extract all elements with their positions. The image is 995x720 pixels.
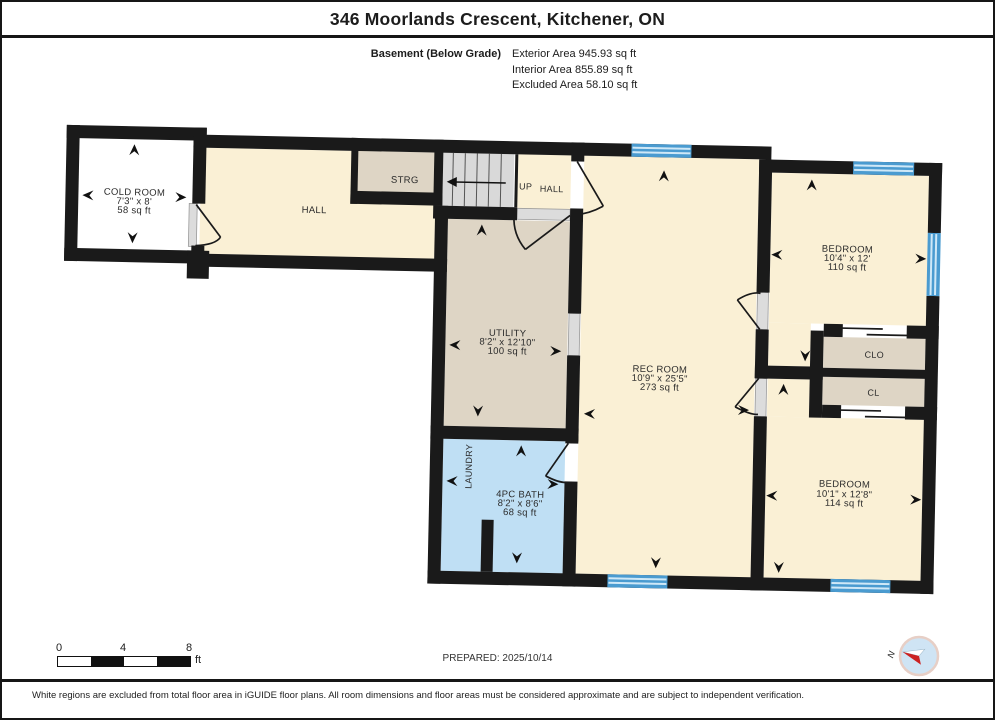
cl-sliding-door [839,410,881,411]
prepared-date: PREPARED: 2025/10/14 [2,653,993,664]
storage-floor [358,151,435,193]
bath-area: 68 sq ft [503,507,537,519]
closet-clo-name: CLO [864,350,884,360]
footer-divider [2,679,993,682]
hall-name: HALL [302,205,327,217]
utility-floor [444,219,570,429]
stairs-up-arrow [455,182,506,183]
stairs-up-label: UP [519,181,532,191]
bedroom-top-area: 110 sq ft [828,262,867,274]
compass-north-label: N [885,649,897,659]
bedroom-top-nook [768,323,811,367]
floorplan-drawing: COLD ROOM 7'3" x 8' 58 sq ft HALL STRG U… [2,2,995,720]
clo-sliding-door [841,328,883,329]
bedroom-bottom-area: 114 sq ft [825,498,864,510]
hall-floor-lower [349,204,435,259]
bedroom-bottom-nook [767,379,810,418]
stair-hall-name: HALL [540,184,564,194]
utility-area: 100 sq ft [488,346,527,358]
laundry-name: LAUNDRY [463,444,474,489]
storage-name: STRG [391,175,419,187]
disclaimer-text: White regions are excluded from total fl… [32,690,804,701]
cold-room-area: 58 sq ft [117,205,151,217]
closet-cl-name: CL [867,388,879,398]
floorplan-page: 346 Moorlands Crescent, Kitchener, ON Ba… [0,0,995,720]
rec-room-area: 273 sq ft [640,382,679,394]
compass-icon: N [882,632,948,680]
